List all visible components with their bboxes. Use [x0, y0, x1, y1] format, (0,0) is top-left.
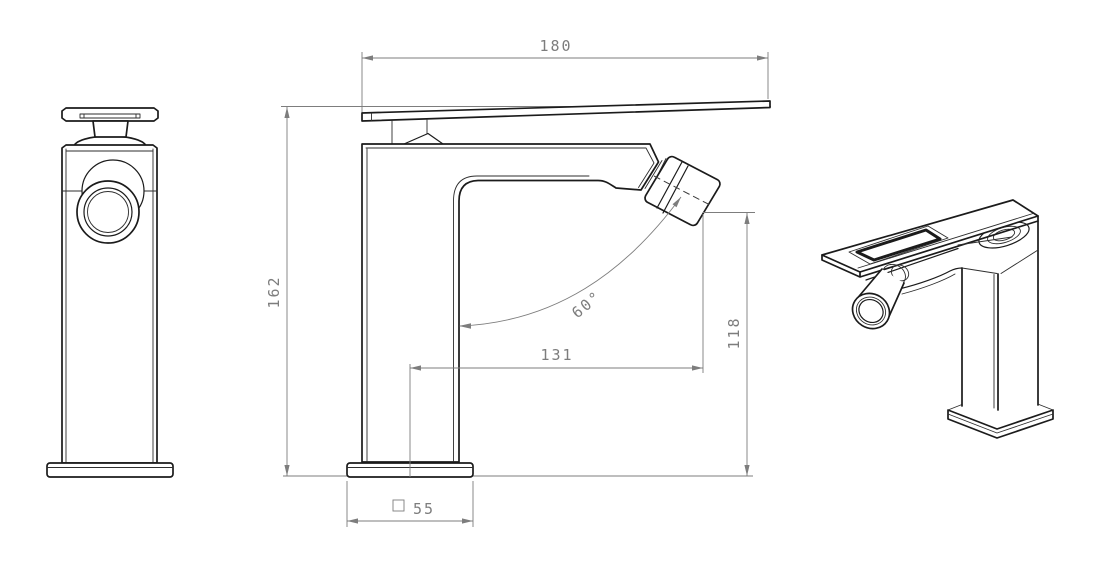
front-base	[47, 463, 173, 477]
side-body	[362, 144, 659, 462]
persp-column	[962, 221, 1038, 410]
dim-55-lines	[347, 481, 473, 527]
dim-162-label: 162	[265, 275, 283, 308]
square-symbol	[393, 500, 404, 511]
side-view: 180 162 60° 118	[265, 37, 771, 527]
dim-angle-label: 60°	[568, 287, 605, 322]
front-spout-face	[77, 181, 139, 243]
dim-55-label: 55	[413, 500, 435, 518]
perspective-view	[822, 200, 1053, 438]
front-view	[47, 108, 173, 477]
technical-drawing-canvas: 180 162 60° 118	[0, 0, 1108, 581]
front-handle	[62, 108, 158, 121]
front-stem	[93, 121, 128, 137]
dim-118-label: 118	[725, 316, 743, 349]
persp-base	[948, 410, 1053, 438]
side-handle	[362, 101, 770, 121]
faucet-three-view-drawing: 180 162 60° 118	[0, 0, 1108, 581]
side-stem	[392, 120, 427, 144]
dim-180-label: 180	[539, 37, 572, 55]
persp-handle-plate	[822, 200, 1038, 272]
dim-131-label: 131	[540, 346, 573, 364]
side-cam	[404, 134, 443, 145]
